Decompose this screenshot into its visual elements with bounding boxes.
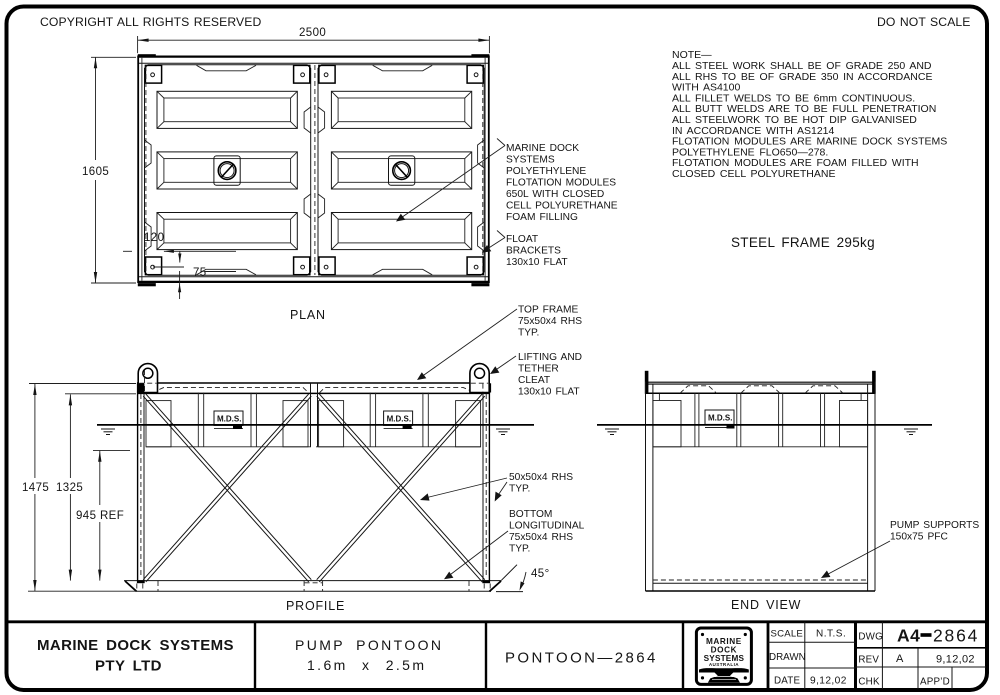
svg-text:TYP.: TYP.	[509, 484, 530, 495]
svg-text:FLOTATION MODULES: FLOTATION MODULES	[506, 178, 616, 189]
svg-text:M.D.S.: M.D.S.	[387, 415, 411, 424]
svg-text:CHK: CHK	[858, 677, 880, 688]
svg-text:CLOSED CELL POLYURETHANE: CLOSED CELL POLYURETHANE	[672, 168, 835, 180]
svg-text:POLYETHYLENE: POLYETHYLENE	[506, 166, 586, 177]
svg-text:A4: A4	[897, 626, 920, 646]
svg-text:REV: REV	[858, 655, 879, 666]
svg-text:PUMP PONTOON: PUMP PONTOON	[295, 637, 443, 653]
svg-text:DRAWN: DRAWN	[769, 652, 806, 663]
svg-text:END VIEW: END VIEW	[731, 598, 801, 612]
svg-text:SYSTEMS: SYSTEMS	[506, 155, 555, 166]
svg-text:TOP FRAME: TOP FRAME	[518, 305, 578, 316]
svg-text:BOTTOM: BOTTOM	[509, 509, 552, 520]
svg-text:50x50x4 RHS: 50x50x4 RHS	[509, 472, 573, 483]
svg-text:A: A	[896, 653, 904, 665]
svg-text:75x50x4 RHS: 75x50x4 RHS	[509, 532, 573, 543]
svg-text:FLOAT: FLOAT	[506, 234, 538, 245]
svg-text:945 REF: 945 REF	[76, 510, 124, 522]
svg-text:SCALE: SCALE	[771, 629, 803, 640]
svg-text:PTY LTD: PTY LTD	[95, 658, 162, 675]
svg-text:130x10 FLAT: 130x10 FLAT	[518, 387, 580, 398]
svg-text:M.D.S.: M.D.S.	[217, 415, 241, 424]
svg-text:PROFILE: PROFILE	[286, 599, 345, 613]
svg-text:APP’D: APP’D	[920, 677, 950, 688]
svg-text:TYP.: TYP.	[518, 328, 539, 339]
svg-text:STEEL FRAME 295kg: STEEL FRAME 295kg	[731, 235, 875, 250]
svg-text:COPYRIGHT ALL RIGHTS RESERV: COPYRIGHT ALL RIGHTS RESERVED	[40, 15, 262, 29]
svg-text:DATE: DATE	[774, 676, 800, 687]
svg-text:CLEAT: CLEAT	[518, 375, 550, 386]
svg-text:75x50x4 RHS: 75x50x4 RHS	[518, 316, 582, 327]
svg-text:LONGITUDINAL: LONGITUDINAL	[509, 521, 585, 532]
svg-text:TYP.: TYP.	[509, 544, 530, 555]
svg-text:1325: 1325	[56, 482, 83, 494]
svg-text:PONTOON—2864: PONTOON—2864	[505, 650, 658, 667]
svg-text:PLAN: PLAN	[290, 308, 326, 322]
svg-text:PUMP SUPPORTS: PUMP SUPPORTS	[890, 520, 979, 531]
svg-text:BRACKETS: BRACKETS	[506, 246, 561, 257]
svg-text:9,12,02: 9,12,02	[810, 676, 847, 687]
svg-text:45°: 45°	[531, 568, 550, 580]
svg-text:MARINE DOCK: MARINE DOCK	[506, 143, 579, 154]
svg-text:DWG: DWG	[858, 632, 883, 643]
svg-text:TETHER: TETHER	[518, 364, 559, 375]
svg-text:2864: 2864	[933, 626, 979, 646]
svg-text:9,12,02: 9,12,02	[936, 654, 975, 666]
svg-text:N.T.S.: N.T.S.	[816, 629, 846, 640]
svg-text:LIFTING AND: LIFTING AND	[518, 352, 582, 363]
svg-text:75: 75	[193, 267, 207, 279]
svg-text:2500: 2500	[299, 27, 326, 39]
svg-text:FOAM FILLING: FOAM FILLING	[506, 212, 578, 223]
svg-text:650L WITH CLOSED: 650L WITH CLOSED	[506, 189, 604, 200]
svg-text:130x10 FLAT: 130x10 FLAT	[506, 257, 568, 268]
svg-text:1605: 1605	[82, 166, 109, 178]
svg-text:1.6m x 2.5m: 1.6m x 2.5m	[307, 657, 426, 673]
svg-text:150x75 PFC: 150x75 PFC	[890, 532, 948, 543]
svg-text:DO NOT SCALE: DO NOT SCALE	[877, 15, 971, 29]
svg-text:MARINE DOCK SYSTEMS: MARINE DOCK SYSTEMS	[37, 637, 234, 654]
svg-text:120: 120	[144, 232, 164, 244]
svg-text:1475: 1475	[22, 482, 49, 494]
svg-text:AUSTRALIA: AUSTRALIA	[709, 662, 739, 667]
svg-text:M.D.S.: M.D.S.	[708, 414, 732, 423]
svg-text:CELL POLYURETHANE: CELL POLYURETHANE	[506, 201, 618, 212]
